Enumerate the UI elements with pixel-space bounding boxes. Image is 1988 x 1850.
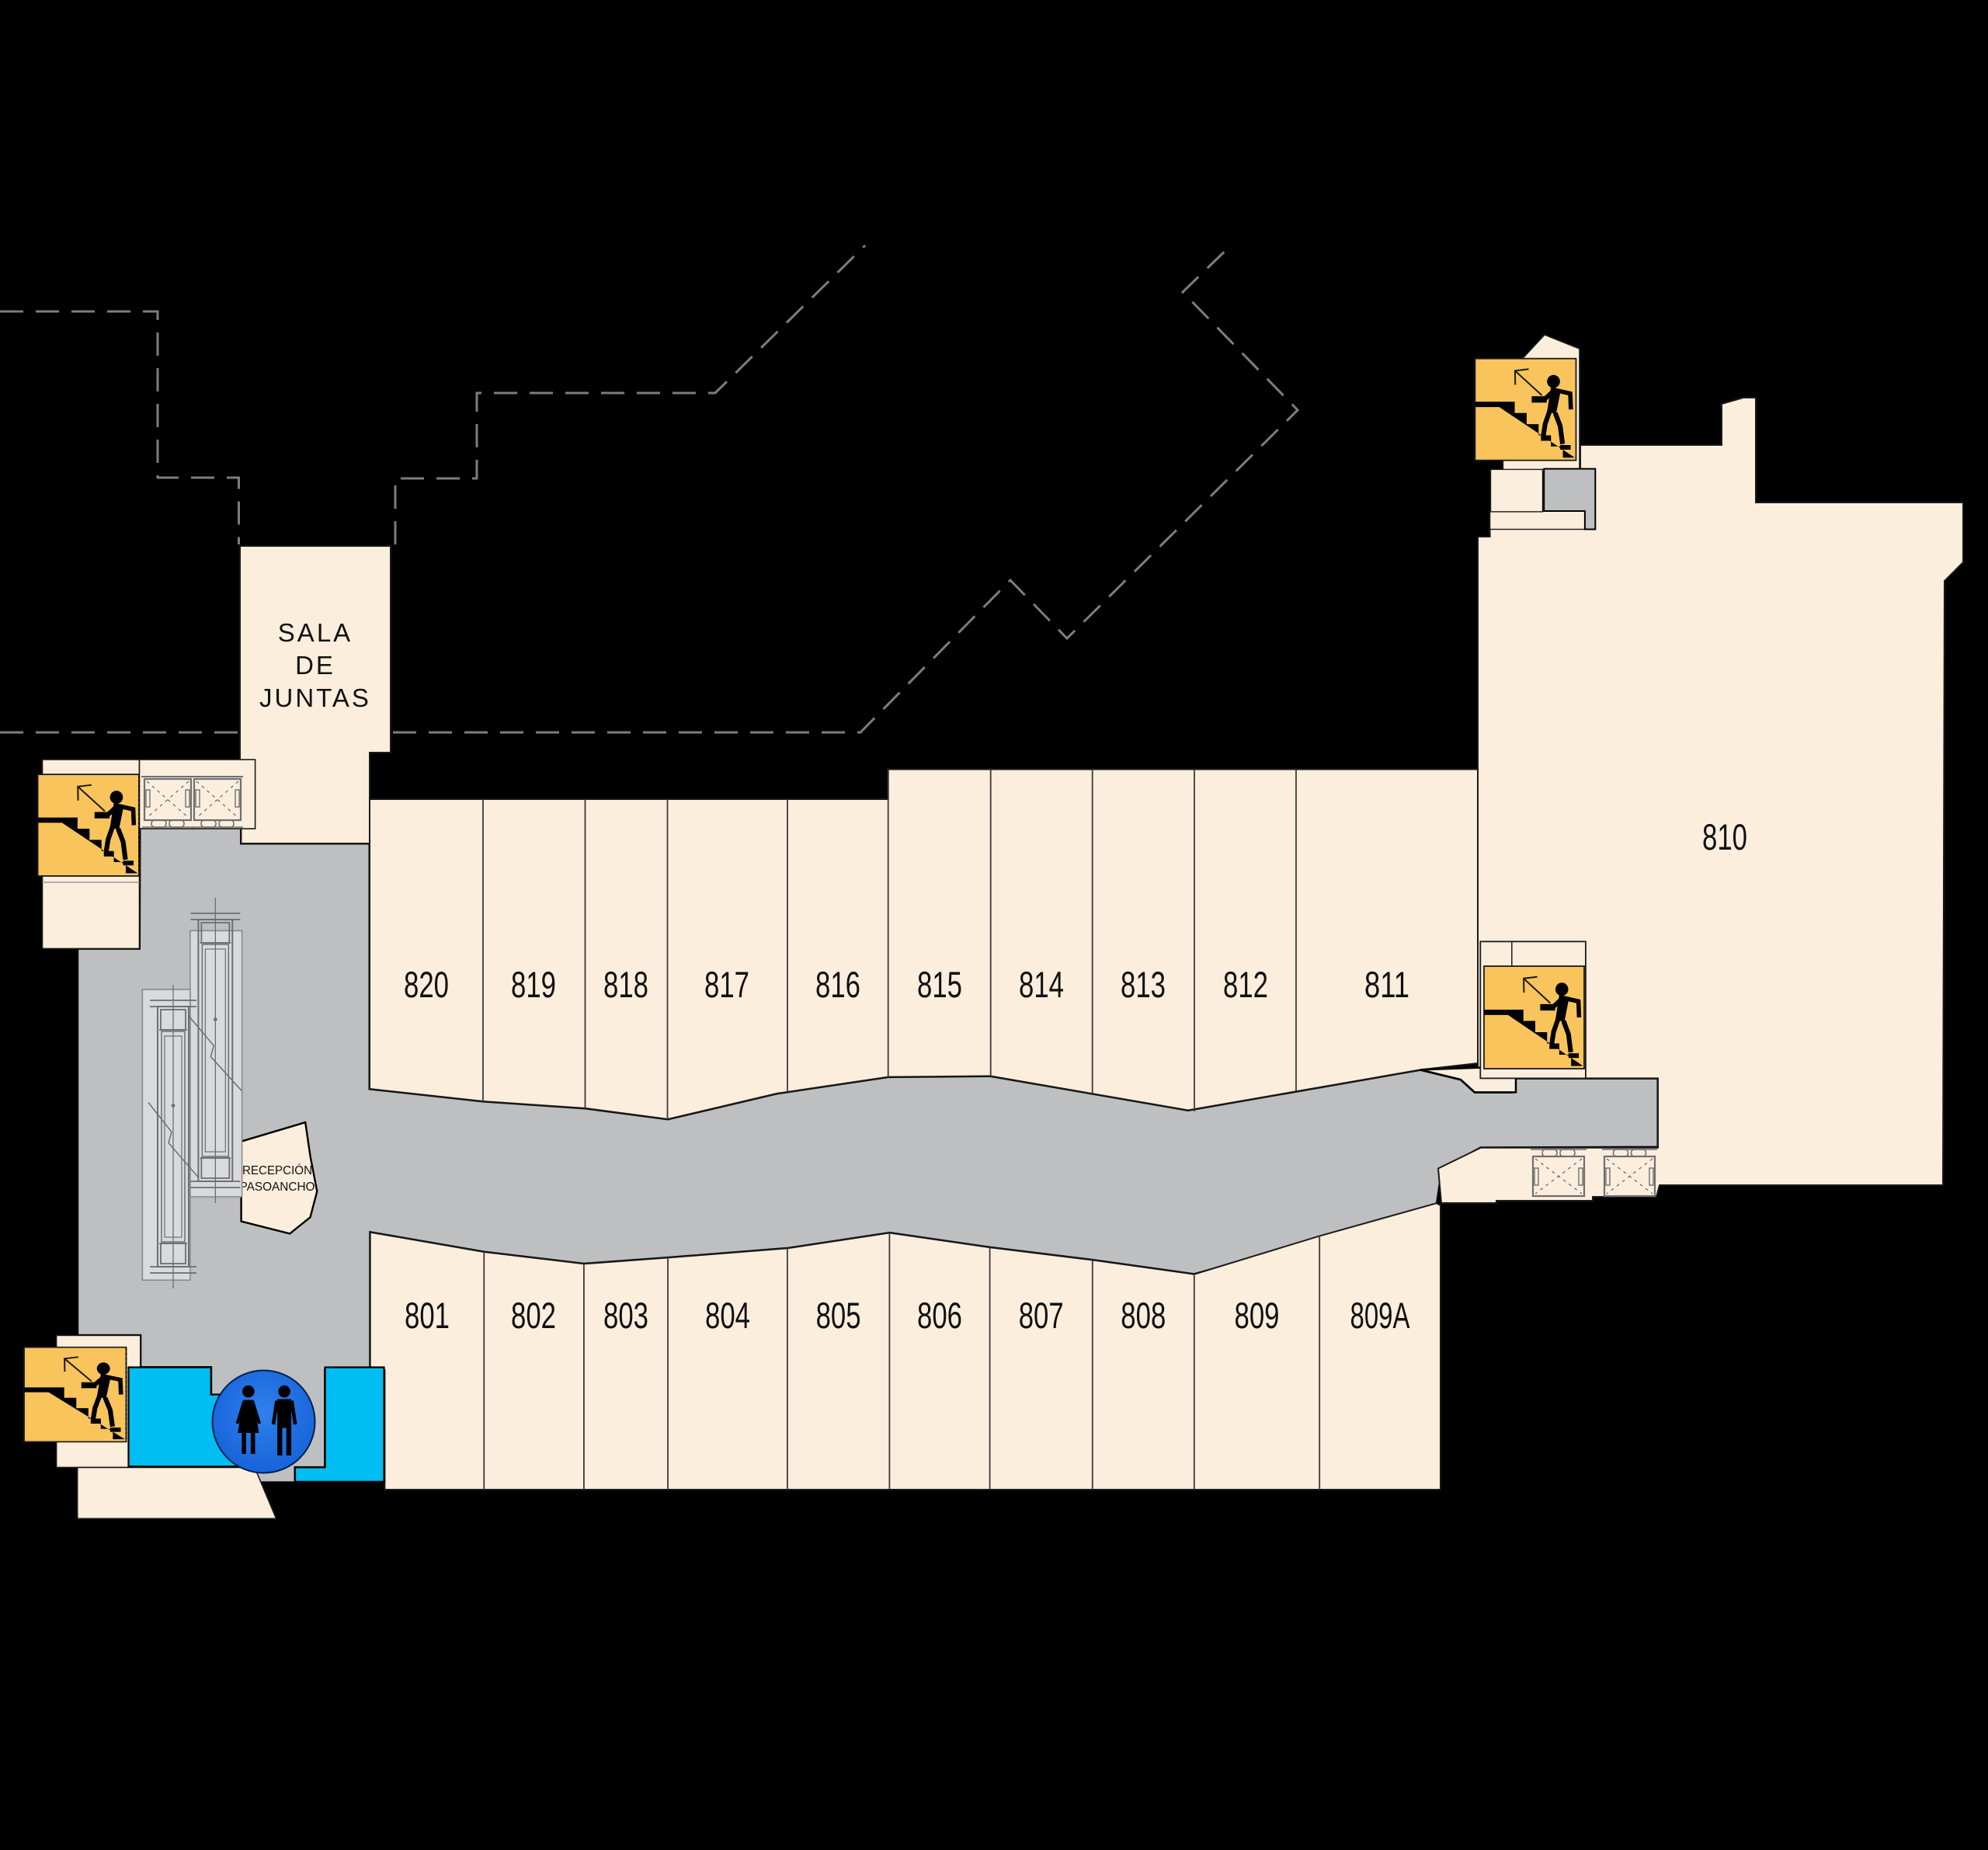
svg-text:808: 808 [1121, 1295, 1166, 1336]
svg-text:815: 815 [917, 964, 962, 1005]
svg-text:PASOANCHO: PASOANCHO [240, 1181, 315, 1194]
svg-text:805: 805 [816, 1295, 861, 1336]
svg-text:816: 816 [815, 964, 860, 1005]
svg-text:RECEPCIÓN: RECEPCIÓN [242, 1163, 312, 1177]
svg-text:813: 813 [1121, 964, 1166, 1005]
svg-text:807: 807 [1019, 1295, 1064, 1336]
svg-text:802: 802 [511, 1295, 556, 1336]
svg-text:817: 817 [704, 964, 749, 1005]
svg-text:810: 810 [1702, 816, 1747, 857]
svg-text:803: 803 [603, 1295, 648, 1336]
svg-text:SALA: SALA [278, 618, 353, 647]
svg-text:DE: DE [295, 651, 335, 680]
svg-text:811: 811 [1364, 964, 1409, 1005]
svg-text:818: 818 [603, 964, 648, 1005]
svg-text:806: 806 [917, 1295, 962, 1336]
svg-text:814: 814 [1019, 964, 1064, 1005]
svg-text:809A: 809A [1350, 1295, 1410, 1336]
svg-text:809: 809 [1235, 1295, 1280, 1336]
svg-text:JUNTAS: JUNTAS [259, 683, 371, 712]
svg-text:801: 801 [405, 1295, 450, 1336]
svg-text:812: 812 [1223, 964, 1268, 1005]
svg-text:819: 819 [511, 964, 556, 1005]
svg-text:820: 820 [404, 964, 449, 1005]
svg-text:804: 804 [705, 1295, 750, 1336]
